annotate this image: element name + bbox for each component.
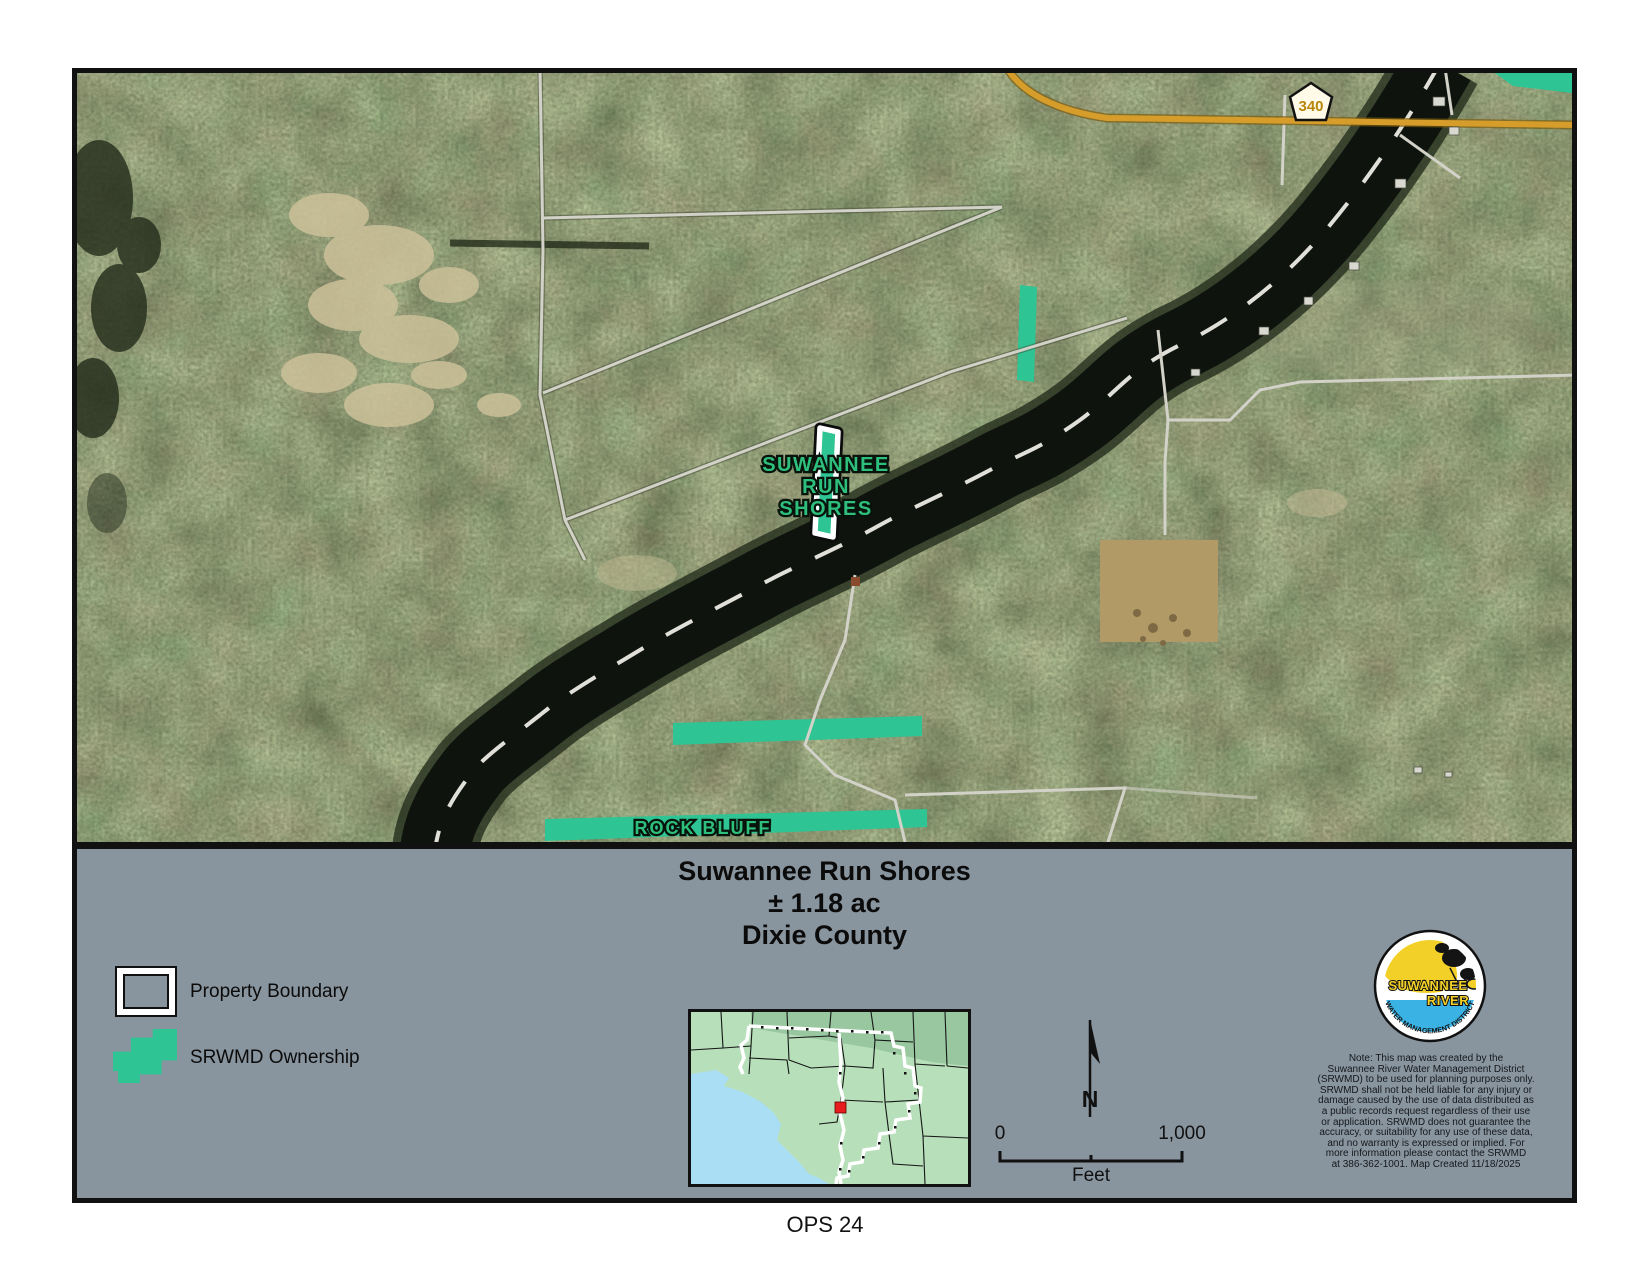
aerial-map: 340 SUWANNEE [77, 73, 1572, 842]
disclaimer-note: Note: This map was created by the Suwann… [1295, 1054, 1557, 1171]
locator-inset-map [688, 1009, 971, 1187]
property-boundary-label: Property Boundary [190, 981, 348, 1003]
scale-end: 1,000 [1158, 1123, 1206, 1144]
rock-bluff-label: ROCK BLUFF [635, 818, 772, 838]
srwmd-ownership-label: SRWMD Ownership [190, 1047, 360, 1069]
map-sheet: 340 SUWANNEE [72, 68, 1577, 1203]
brown-field [1100, 540, 1218, 646]
logo-text-river: RIVER [1427, 993, 1469, 1008]
scale-bar: 0 1,000 Feet [967, 1114, 1247, 1192]
property-label-line1: SUWANNEE [762, 454, 890, 476]
property-boundary-swatch [115, 966, 177, 1017]
hut [851, 577, 860, 586]
road-340-number: 340 [1298, 98, 1323, 115]
north-arrow: N [1072, 1014, 1112, 1126]
logo-text-suwannee: SUWANNEE [1388, 978, 1467, 993]
map-county: Dixie County [77, 919, 1572, 951]
north-label: N [1082, 1086, 1099, 1112]
map-title: Suwannee Run Shores [77, 855, 1572, 887]
srwmd-logo: SUWANNEE RIVER WATER MANAGEMENT DISTRICT [1372, 928, 1488, 1044]
property-label-line2: RUN [802, 476, 850, 498]
title-block: Suwannee Run Shores ± 1.18 ac Dixie Coun… [77, 855, 1572, 951]
info-panel: Suwannee Run Shores ± 1.18 ac Dixie Coun… [72, 845, 1577, 1203]
scale-unit: Feet [1072, 1165, 1111, 1186]
footer-label: OPS 24 [0, 1212, 1650, 1238]
tree-shadow [450, 243, 649, 246]
scale-start: 0 [995, 1123, 1006, 1144]
map-frame: 340 SUWANNEE [72, 68, 1577, 845]
site-location-marker [835, 1102, 846, 1113]
property-label-line3: SHORES [779, 498, 872, 520]
map-acreage: ± 1.18 ac [77, 887, 1572, 919]
srwmd-ownership-swatch [113, 1029, 177, 1083]
